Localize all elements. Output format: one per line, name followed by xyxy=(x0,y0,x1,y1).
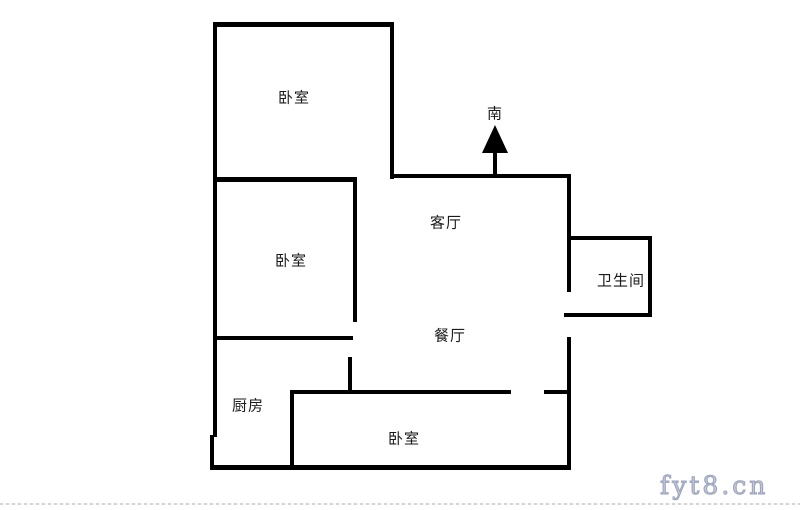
room-label-bathroom: 卫生间 xyxy=(597,270,645,291)
south-arrow-shaft xyxy=(493,145,497,176)
wall-bathroom-bottom xyxy=(564,313,652,317)
wall-bedroom-mid-right xyxy=(353,177,357,322)
room-label-bedroom-top: 卧室 xyxy=(278,87,310,108)
scan-artifact-line xyxy=(0,503,800,505)
room-label-living-room: 客厅 xyxy=(430,212,462,233)
room-label-bedroom-bottom: 卧室 xyxy=(388,428,420,449)
room-label-kitchen: 厨房 xyxy=(232,395,264,416)
room-label-bedroom-mid: 卧室 xyxy=(275,250,307,271)
wall-living-top xyxy=(390,174,571,178)
room-label-dining-room: 餐厅 xyxy=(434,325,466,346)
wall-bedroom-bottom-left xyxy=(290,390,294,468)
wall-outer-right-lower xyxy=(567,337,571,470)
wall-outer-bottom xyxy=(210,465,571,470)
watermark: fyt8.cn xyxy=(660,471,768,500)
wall-bedroom-divider xyxy=(213,177,357,182)
compass-label: 南 xyxy=(487,103,503,124)
wall-bathroom-right xyxy=(648,236,652,317)
wall-right-upper-bath-left xyxy=(567,174,571,292)
wall-bedroom-bottom-top xyxy=(290,390,511,394)
wall-kitchen-divider xyxy=(348,357,352,393)
wall-bedroom-bottom-top-right xyxy=(544,390,569,394)
floorplan-canvas: 卧室 卧室 客厅 卫生间 餐厅 厨房 卧室 南 fyt8.cn xyxy=(0,0,800,510)
wall-bedroom-mid-bottom xyxy=(213,336,353,340)
wall-bathroom-top xyxy=(567,236,652,240)
wall-bedroom-top-right xyxy=(390,22,394,179)
wall-outer-top xyxy=(213,22,394,27)
wall-outer-left-upper xyxy=(213,22,217,437)
